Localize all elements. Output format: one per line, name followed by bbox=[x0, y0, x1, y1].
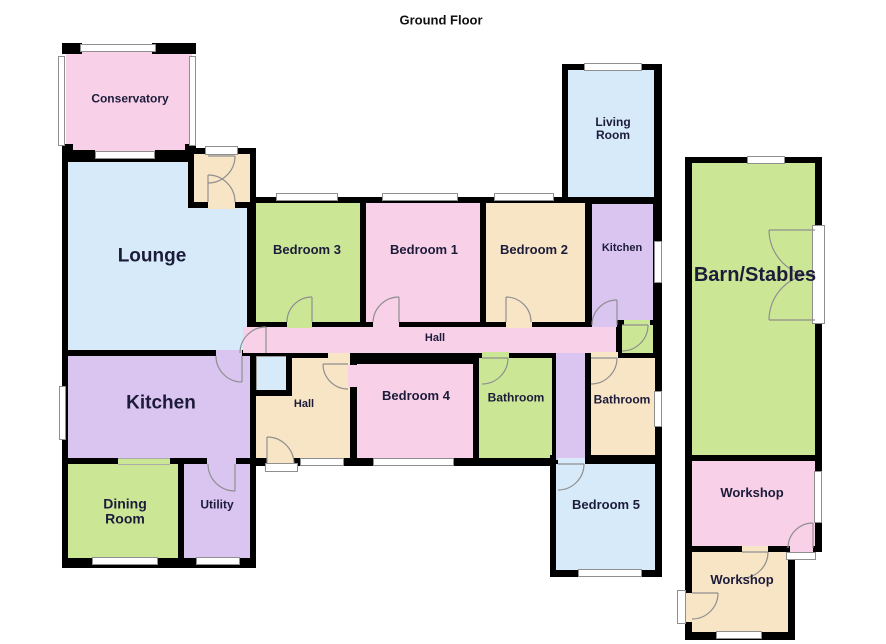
living-room-label: Living Room bbox=[595, 116, 630, 142]
conservatory-corner-tl bbox=[62, 43, 82, 54]
barn-stables bbox=[692, 163, 815, 455]
window bbox=[196, 557, 240, 565]
workshop-workshop-doorway bbox=[742, 546, 768, 553]
inner-corridor bbox=[556, 353, 585, 460]
window bbox=[59, 386, 66, 440]
window bbox=[382, 193, 458, 201]
rear-lobby bbox=[622, 325, 653, 353]
barn-stables-label: Barn/Stables bbox=[694, 264, 816, 286]
window bbox=[58, 56, 65, 146]
bathroom-1 bbox=[479, 358, 552, 458]
bedroom4-doorway bbox=[348, 365, 357, 387]
utility-doorway bbox=[207, 458, 236, 465]
bathroom-2-label: Bathroom bbox=[594, 393, 651, 406]
bedroom-4 bbox=[357, 364, 473, 458]
cupboard bbox=[256, 356, 286, 390]
bedroom3-doorway bbox=[287, 320, 312, 328]
window bbox=[654, 241, 662, 283]
bathroom-2 bbox=[591, 358, 655, 458]
window bbox=[80, 44, 156, 52]
kitchen-right bbox=[592, 204, 653, 320]
workshop-2-label: Workshop bbox=[710, 573, 773, 587]
front-porch-door bbox=[205, 146, 238, 155]
window bbox=[584, 63, 642, 71]
bedroom2-doorway bbox=[506, 320, 532, 328]
window bbox=[494, 193, 554, 201]
hall-main-label: Hall bbox=[425, 332, 445, 344]
workshop-2 bbox=[692, 552, 788, 632]
rear-door bbox=[265, 463, 298, 472]
conservatory-label: Conservatory bbox=[91, 92, 168, 105]
workshop-1 bbox=[692, 461, 815, 546]
lounge-label: Lounge bbox=[118, 247, 187, 268]
bedroom-3-label: Bedroom 3 bbox=[273, 243, 341, 257]
porch-lounge-doorway bbox=[208, 202, 235, 209]
bedroom-3 bbox=[256, 203, 360, 322]
bedroom-1-label: Bedroom 1 bbox=[390, 243, 458, 257]
bedroom-2-label: Bedroom 2 bbox=[500, 243, 568, 257]
bedroom-5 bbox=[556, 464, 655, 570]
window bbox=[92, 557, 158, 565]
porch bbox=[194, 154, 250, 202]
dining-room-label: Dining Room bbox=[103, 497, 147, 528]
bedroom5-doorway bbox=[558, 458, 585, 466]
hall-lower-label: Hall bbox=[294, 398, 314, 410]
window bbox=[654, 391, 662, 427]
kitchen-left-label: Kitchen bbox=[126, 394, 196, 415]
conservatory-corner-tr bbox=[152, 43, 196, 54]
kitchen-dining-opening bbox=[118, 458, 170, 465]
window bbox=[814, 471, 822, 523]
window bbox=[276, 193, 338, 201]
window bbox=[95, 151, 155, 159]
utility-label: Utility bbox=[200, 498, 233, 511]
window bbox=[716, 631, 762, 639]
floor-plan: Ground Floor ConservatoryLoungeKitchenDi… bbox=[0, 0, 886, 644]
bathroom1-doorway bbox=[482, 352, 509, 359]
window bbox=[747, 156, 785, 164]
kitchen-right-label: Kitchen bbox=[602, 242, 642, 254]
plan-title: Ground Floor bbox=[399, 13, 482, 28]
bedroom1-doorway bbox=[373, 320, 399, 328]
lounge-kitchen-doorway bbox=[216, 350, 242, 357]
window bbox=[373, 458, 454, 466]
hall-hall-doorway bbox=[328, 353, 350, 365]
bedroom-4-label: Bedroom 4 bbox=[382, 389, 450, 403]
workshop-1-label: Workshop bbox=[720, 486, 783, 500]
bedroom-1 bbox=[366, 203, 480, 322]
workshop2-door bbox=[677, 590, 686, 624]
lobby-doorway bbox=[624, 320, 650, 326]
bedroom-2 bbox=[486, 203, 585, 322]
bedroom-5-label: Bedroom 5 bbox=[572, 498, 640, 512]
bathroom2-doorway bbox=[591, 352, 618, 359]
cupboard-wall-bottom bbox=[256, 390, 292, 396]
window bbox=[189, 56, 196, 146]
workshop2-ext-doorway bbox=[685, 593, 692, 622]
kitchen-right-doorway bbox=[592, 320, 617, 327]
bathroom-1-label: Bathroom bbox=[488, 391, 545, 404]
window bbox=[300, 458, 344, 466]
workshop1-door bbox=[786, 552, 816, 560]
window bbox=[578, 569, 642, 577]
